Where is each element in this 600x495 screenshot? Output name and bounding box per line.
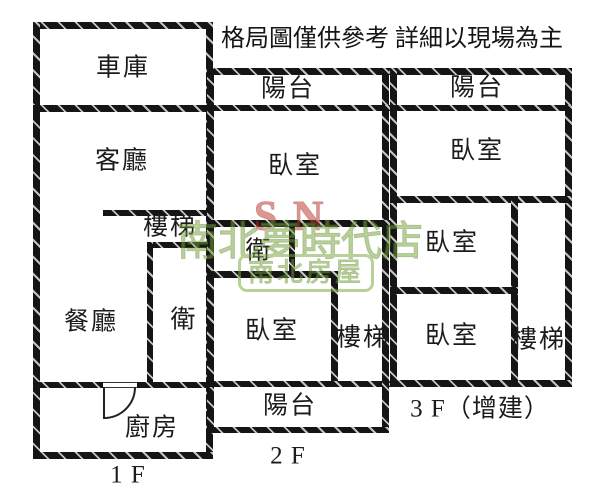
wall-segment — [207, 220, 390, 227]
room-label-stairs-2f: 樓梯 — [336, 326, 390, 351]
wall-segment — [207, 68, 214, 433]
room-label-bedroom-lower-3f: 臥室 — [425, 324, 479, 349]
wall-segment — [390, 68, 397, 387]
wall-segment — [147, 242, 213, 248]
floor-plan: 格局圖僅供參考 詳細以現場為主 車庫 客廳 樓梯 餐廳 衛 廚房 1 F 陽台 … — [0, 0, 600, 495]
room-label-living-room: 客廳 — [95, 149, 149, 174]
room-label-bedroom-upper-3f: 臥室 — [450, 139, 504, 164]
wall-segment — [147, 242, 153, 388]
wall-segment — [207, 381, 390, 387]
wall-segment — [33, 22, 40, 459]
wall-segment — [33, 452, 213, 459]
room-label-bedroom-upper-2f: 臥室 — [268, 154, 322, 179]
room-label-balcony-top-2f: 陽台 — [261, 77, 315, 102]
watermark-letter-n: N — [293, 196, 323, 238]
floor-label-2f: 2 F — [270, 444, 306, 469]
wall-segment — [565, 68, 572, 387]
wall-segment — [207, 68, 390, 75]
room-label-stairs-1f: 樓梯 — [143, 215, 197, 240]
floor-label-3f: 3 F（增建） — [410, 397, 550, 422]
room-label-balcony-3f: 陽台 — [450, 76, 504, 101]
wall-segment — [33, 105, 213, 112]
watermark-letter-s: S — [254, 196, 277, 238]
wall-segment — [33, 22, 213, 29]
room-label-bathroom-2f: 衛 — [245, 239, 272, 264]
room-label-dining-room: 餐廳 — [64, 310, 118, 335]
wall-segment — [390, 196, 572, 203]
wall-segment — [390, 380, 572, 387]
room-label-kitchen: 廚房 — [125, 416, 179, 441]
room-label-garage: 車庫 — [96, 56, 150, 81]
floor-label-1f: 1 F — [110, 463, 146, 488]
wall-segment — [390, 287, 518, 294]
room-label-bedroom-middle-3f: 臥室 — [425, 231, 479, 256]
wall-segment — [382, 381, 389, 433]
plan-title: 格局圖僅供參考 詳細以現場為主 — [214, 25, 570, 54]
wall-segment — [137, 382, 213, 388]
wall-segment — [390, 105, 572, 111]
wall-segment — [289, 220, 295, 278]
wall-segment — [207, 105, 390, 111]
wall-segment — [33, 382, 103, 388]
wall-segment — [207, 427, 389, 433]
room-label-stairs-3f: 樓梯 — [512, 328, 566, 353]
wall-segment — [207, 271, 338, 278]
room-label-balcony-bottom-2f: 陽台 — [263, 394, 317, 419]
room-label-bathroom-1f: 衛 — [170, 308, 197, 333]
room-label-bedroom-lower-2f: 臥室 — [245, 319, 299, 344]
